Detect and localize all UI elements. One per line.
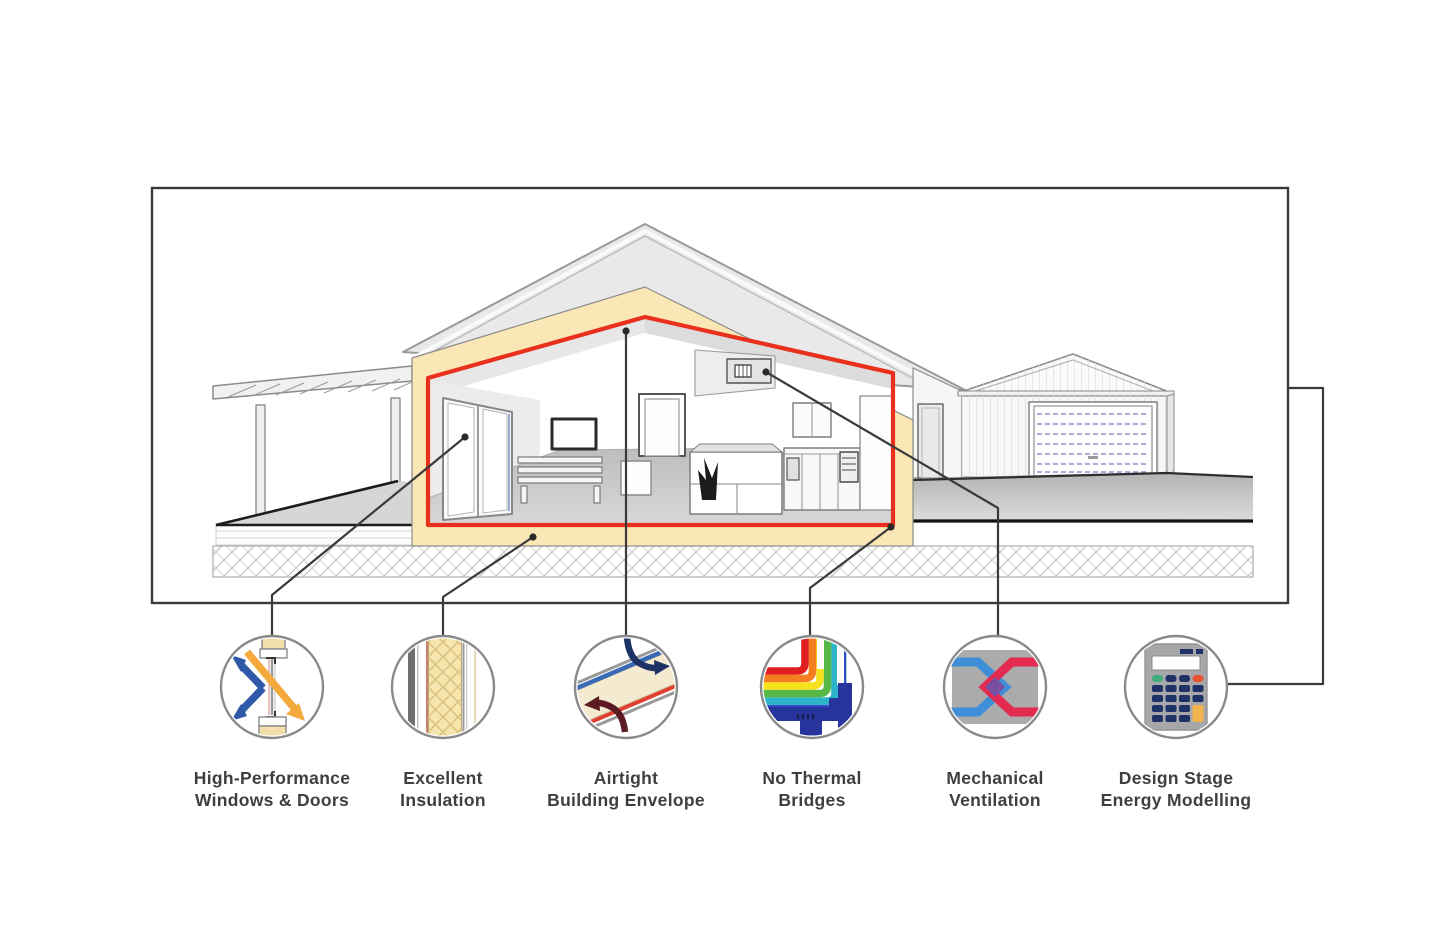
feature-label-line2: Building Envelope — [547, 790, 705, 810]
feature-label-line1: No Thermal — [762, 768, 861, 788]
porch-post — [256, 405, 265, 523]
foundation-hatch — [213, 546, 1253, 577]
feature-airtight: Airtight Building Envelope — [547, 636, 705, 810]
feature-insulation: Excellent Insulation — [392, 636, 494, 810]
feature-thermal-bridges: No Thermal Bridges — [761, 636, 863, 810]
feature-label-line1: Excellent — [403, 768, 483, 788]
passive-house-diagram: High-Performance Windows & Doors Excelle… — [0, 0, 1440, 928]
oven — [787, 458, 799, 480]
feature-energy-modelling: Design Stage Energy Modelling — [1101, 636, 1252, 810]
feature-label-line1: Airtight — [594, 768, 659, 788]
tall-cabinet — [860, 396, 893, 510]
house-illustration — [213, 224, 1253, 577]
feature-label-line2: Bridges — [778, 790, 845, 810]
diagram-svg: High-Performance Windows & Doors Excelle… — [0, 0, 1440, 928]
interior-doorway — [639, 394, 685, 456]
feature-label-line2: Insulation — [400, 790, 486, 810]
kitchen-counter — [784, 448, 860, 510]
feature-label-line1: Design Stage — [1119, 768, 1233, 788]
feature-label-line2: Windows & Doors — [195, 790, 349, 810]
deck-fascia — [216, 524, 428, 545]
feature-label-line1: High-Performance — [194, 768, 351, 788]
heat-recovery-ventilation-icon — [947, 650, 1043, 724]
feature-windows-doors: High-Performance Windows & Doors — [194, 636, 351, 810]
feature-label-line2: Energy Modelling — [1101, 790, 1252, 810]
feature-label-line1: Mechanical — [946, 768, 1043, 788]
garage — [958, 354, 1174, 478]
sliding-glass-door — [443, 398, 512, 520]
calculator-icon — [1145, 644, 1207, 730]
stove — [840, 452, 858, 482]
feature-ventilation: Mechanical Ventilation — [944, 636, 1046, 810]
wall-picture — [552, 419, 596, 449]
deck — [216, 481, 412, 525]
feature-label-line2: Ventilation — [949, 790, 1041, 810]
garage-roller-door — [1029, 402, 1157, 478]
leader-modelling-connector — [1227, 388, 1323, 684]
